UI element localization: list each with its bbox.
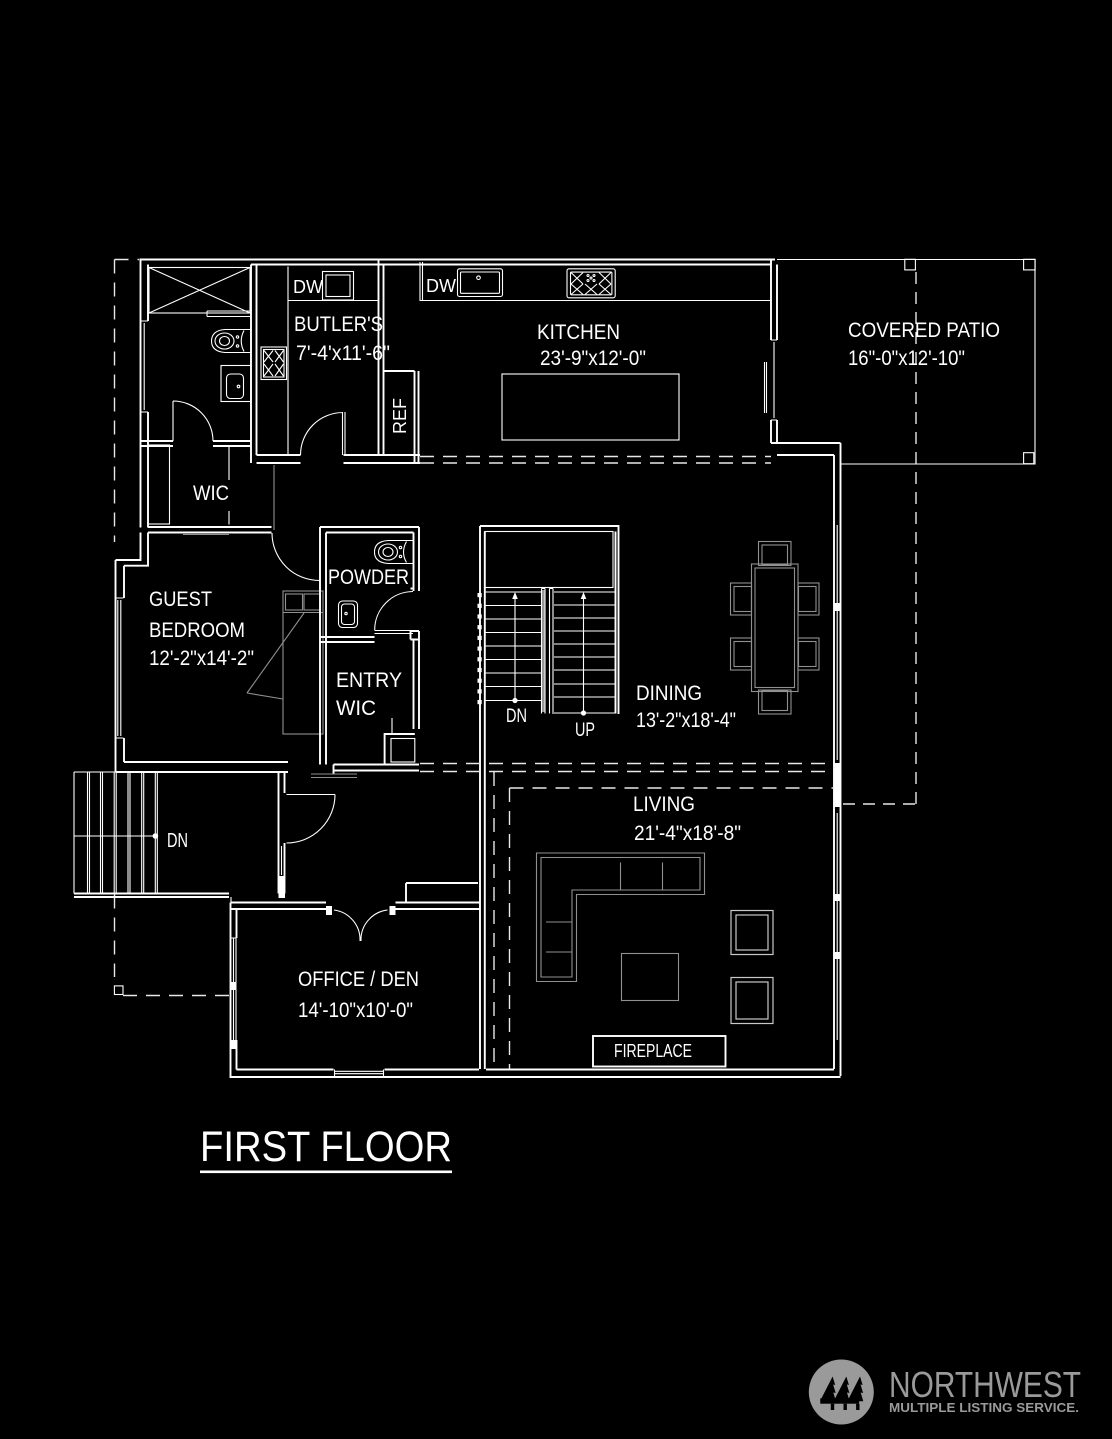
svg-text:12'-2"x14'-2": 12'-2"x14'-2" (149, 647, 254, 670)
svg-text:DW: DW (293, 277, 323, 297)
svg-text:OFFICE / DEN: OFFICE / DEN (298, 968, 419, 991)
svg-text:DW: DW (426, 276, 456, 296)
svg-text:BUTLER'S: BUTLER'S (294, 313, 383, 336)
svg-text:COVERED PATIO: COVERED PATIO (848, 319, 1000, 342)
svg-text:23'-9"x12'-0": 23'-9"x12'-0" (540, 347, 646, 370)
svg-text:7'-4'x11'-6": 7'-4'x11'-6" (296, 342, 390, 365)
svg-text:13'-2"x18'-4": 13'-2"x18'-4" (636, 709, 736, 732)
svg-text:BEDROOM: BEDROOM (149, 619, 245, 642)
svg-text:14'-10"x10'-0": 14'-10"x10'-0" (298, 999, 413, 1022)
svg-text:REF: REF (390, 398, 410, 434)
svg-text:LIVING: LIVING (633, 793, 695, 816)
svg-text:21'-4"x18'-8": 21'-4"x18'-8" (634, 822, 741, 845)
svg-text:MULTIPLE LISTING SERVICE.: MULTIPLE LISTING SERVICE. (889, 1401, 1079, 1415)
svg-text:DN: DN (167, 830, 188, 852)
svg-text:WIC: WIC (336, 697, 376, 720)
svg-text:DN: DN (506, 706, 527, 727)
svg-text:DINING: DINING (636, 682, 702, 705)
svg-text:UP: UP (575, 720, 595, 741)
svg-text:GUEST: GUEST (149, 588, 212, 611)
svg-text:WIC: WIC (193, 482, 229, 505)
svg-text:FIRST FLOOR: FIRST FLOOR (200, 1123, 452, 1171)
svg-text:16"-0"x12'-10": 16"-0"x12'-10" (848, 347, 965, 370)
svg-text:ENTRY: ENTRY (336, 669, 402, 692)
svg-text:POWDER: POWDER (328, 566, 409, 589)
svg-text:FIREPLACE: FIREPLACE (614, 1041, 692, 1061)
svg-text:NORTHWEST: NORTHWEST (889, 1364, 1081, 1405)
svg-text:KITCHEN: KITCHEN (537, 321, 620, 344)
